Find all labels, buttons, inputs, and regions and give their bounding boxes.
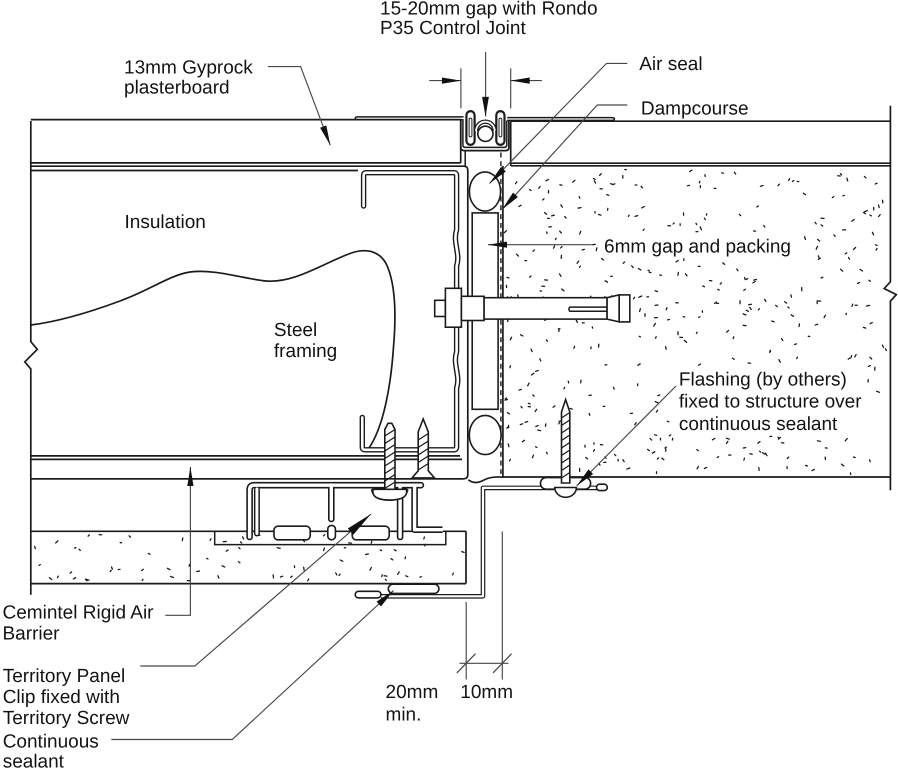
svg-text:fixed to structure over: fixed to structure over xyxy=(679,392,862,413)
svg-text:P35 Control Joint: P35 Control Joint xyxy=(380,18,526,39)
svg-text:Continuous: Continuous xyxy=(3,732,99,753)
svg-text:framing: framing xyxy=(274,341,337,362)
svg-text:Dampcourse: Dampcourse xyxy=(641,98,749,119)
svg-text:Clip fixed with: Clip fixed with xyxy=(3,687,120,708)
svg-text:Barrier: Barrier xyxy=(3,624,61,645)
svg-text:Insulation: Insulation xyxy=(125,212,206,233)
svg-text:sealant: sealant xyxy=(3,752,65,768)
svg-text:Territory Screw: Territory Screw xyxy=(3,708,130,729)
svg-text:Territory Panel: Territory Panel xyxy=(3,666,126,687)
svg-text:Flashing (by others): Flashing (by others) xyxy=(679,369,847,390)
svg-text:plasterboard: plasterboard xyxy=(124,77,230,98)
svg-text:13mm Gyprock: 13mm Gyprock xyxy=(124,57,253,78)
svg-text:Cemintel Rigid Air: Cemintel Rigid Air xyxy=(3,602,155,623)
svg-text:min.: min. xyxy=(386,704,422,725)
svg-text:20mm: 20mm xyxy=(386,682,439,703)
svg-text:6mm gap and packing: 6mm gap and packing xyxy=(604,237,791,258)
svg-text:Steel: Steel xyxy=(274,320,317,341)
svg-text:Air seal: Air seal xyxy=(639,54,702,75)
svg-text:continuous sealant: continuous sealant xyxy=(679,414,838,435)
svg-text:15-20mm gap with Rondo: 15-20mm gap with Rondo xyxy=(380,0,598,19)
svg-text:10mm: 10mm xyxy=(460,682,513,703)
